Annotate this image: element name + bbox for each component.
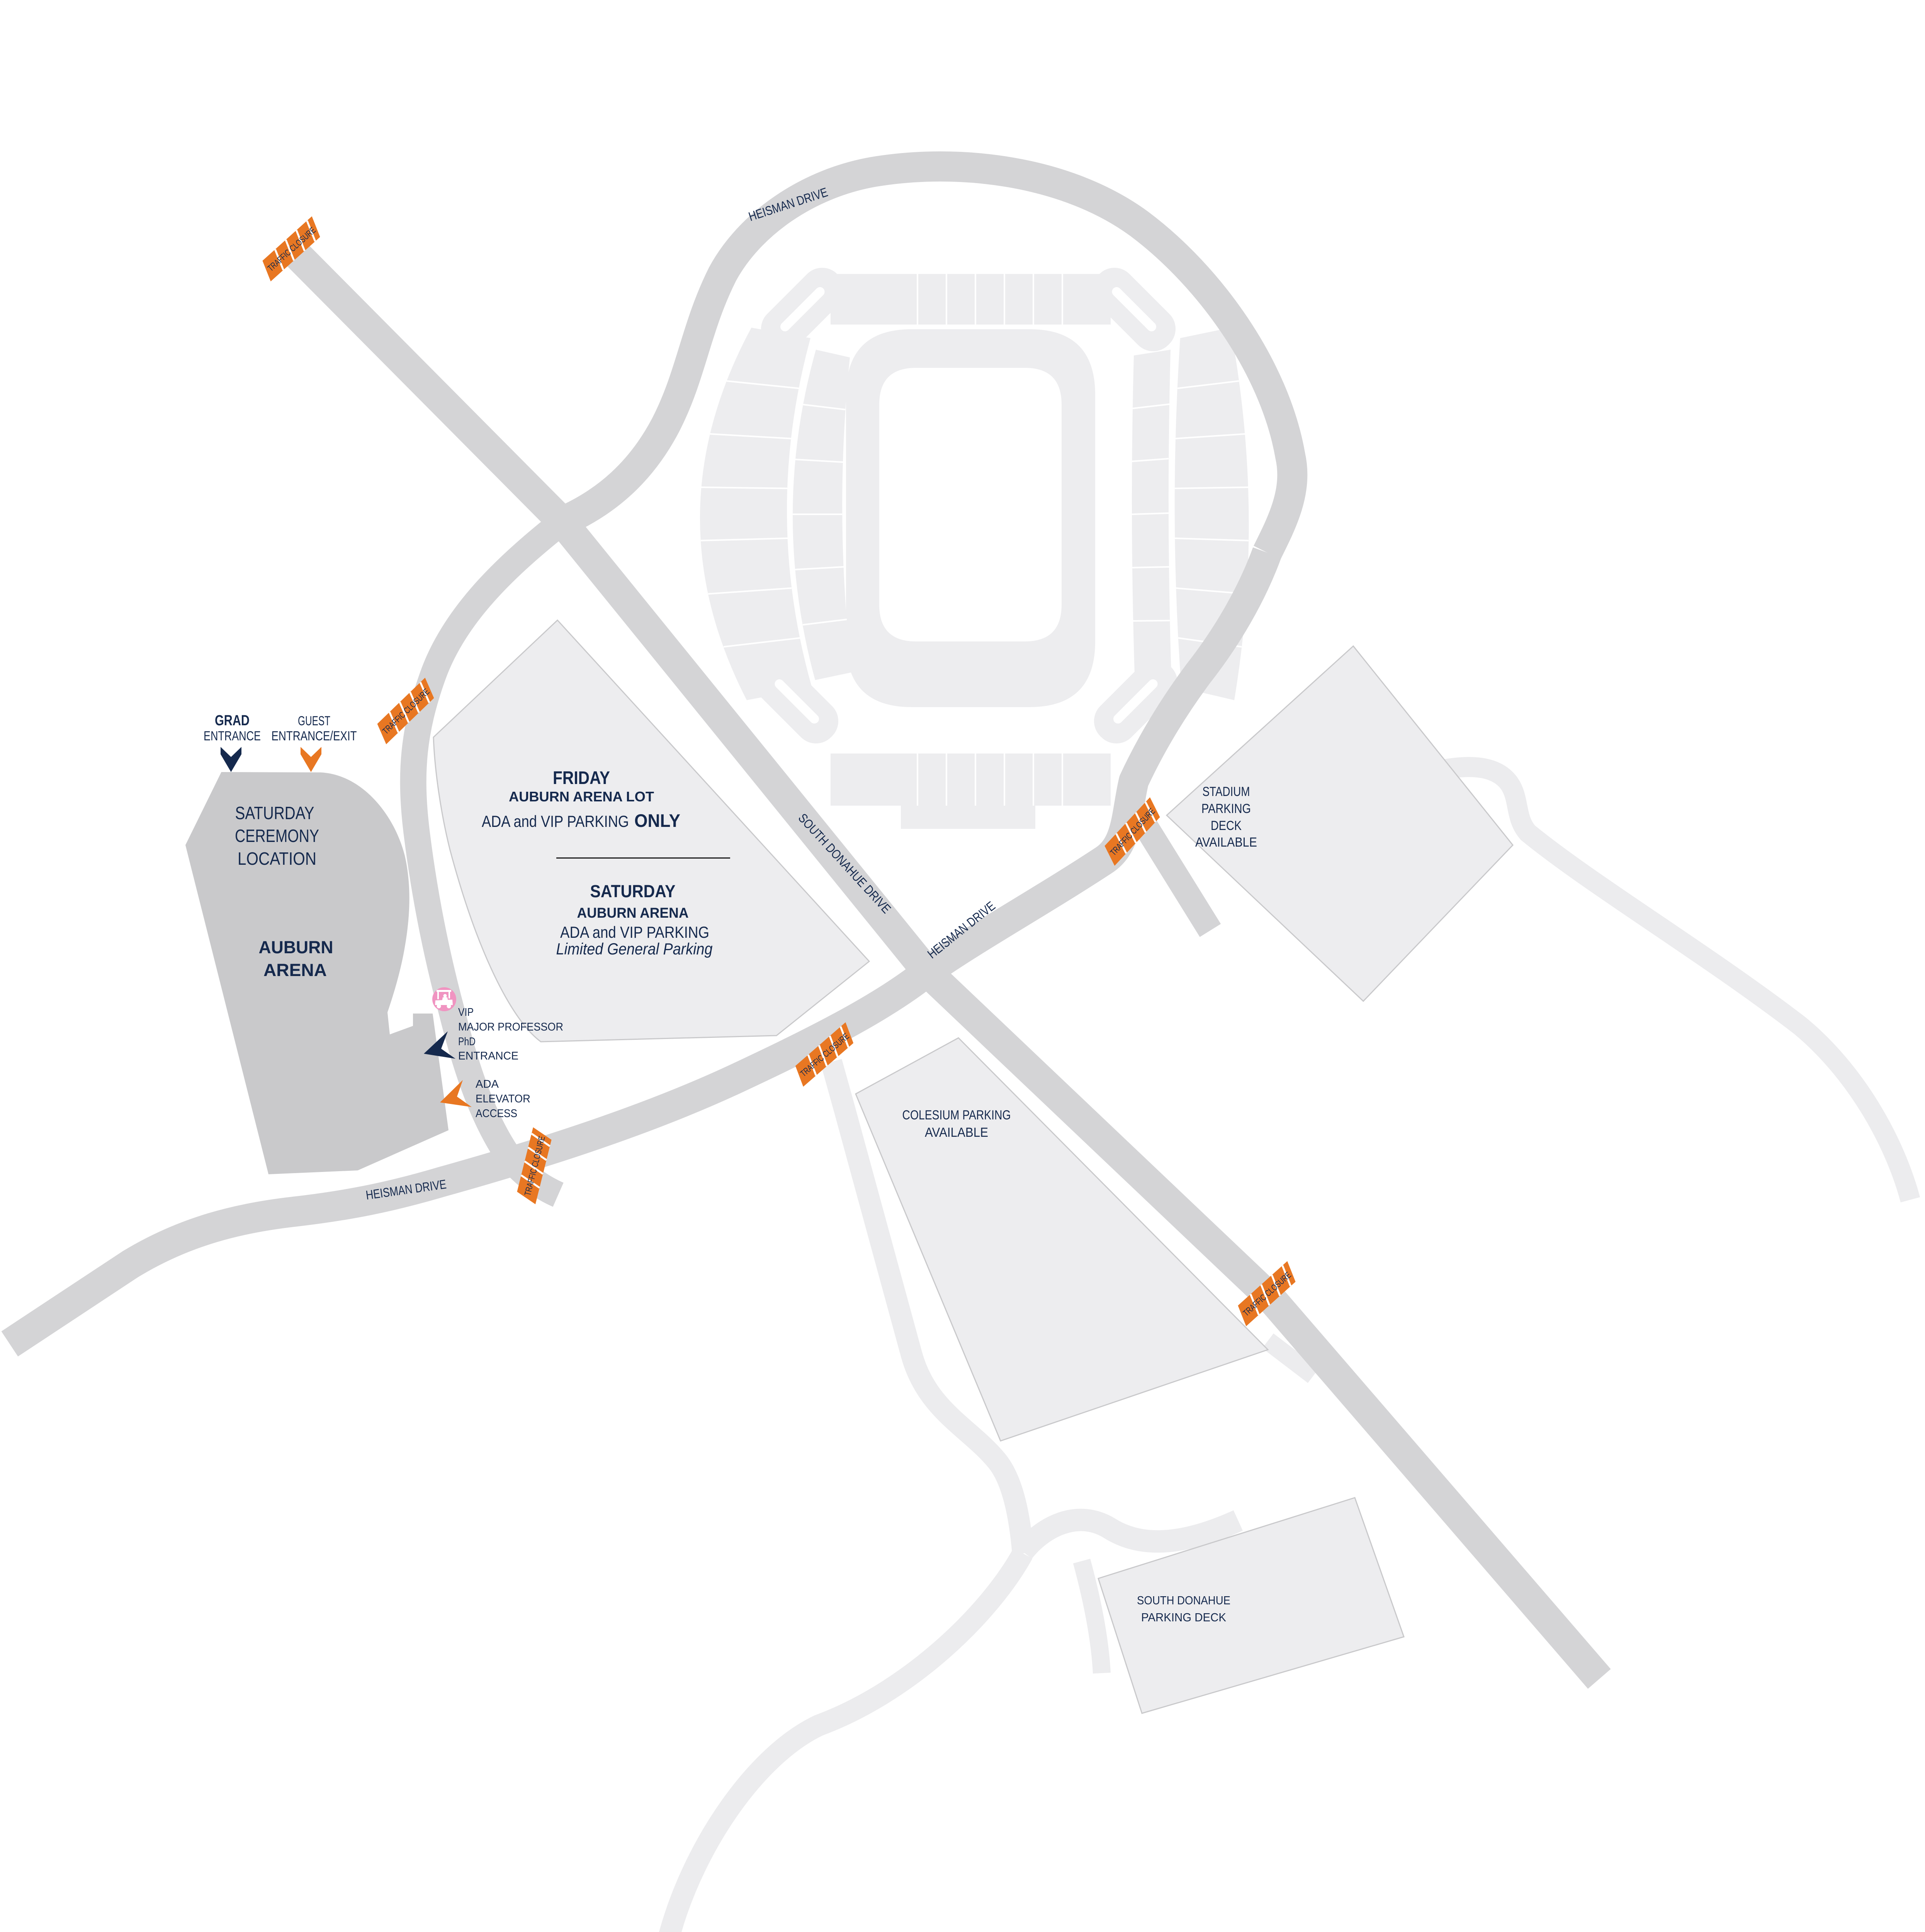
svg-text:ARENA: ARENA [263, 960, 327, 980]
svg-text:GRAD: GRAD [215, 713, 250, 729]
svg-text:PhD: PhD [458, 1036, 476, 1048]
svg-text:DECK: DECK [1211, 818, 1242, 833]
svg-text:FRIDAY: FRIDAY [553, 767, 610, 788]
svg-text:ENTRANCE: ENTRANCE [204, 729, 261, 743]
svg-text:LOCATION: LOCATION [238, 849, 316, 869]
svg-text:AVAILABLE: AVAILABLE [925, 1125, 988, 1140]
svg-text:ADA: ADA [476, 1078, 499, 1090]
svg-text:ONLY: ONLY [634, 810, 680, 831]
svg-text:ADA and VIP PARKING: ADA and VIP PARKING [482, 812, 629, 830]
svg-text:MAJOR PROFESSOR: MAJOR PROFESSOR [458, 1021, 563, 1033]
svg-text:PARKING: PARKING [1201, 801, 1251, 816]
svg-text:GUEST: GUEST [298, 714, 330, 728]
svg-text:AUBURN ARENA: AUBURN ARENA [577, 905, 689, 921]
svg-text:Limited General Parking: Limited General Parking [556, 940, 713, 958]
svg-text:COLESIUM PARKING: COLESIUM PARKING [902, 1108, 1011, 1122]
svg-text:STADIUM: STADIUM [1203, 784, 1250, 799]
svg-text:ENTRANCE: ENTRANCE [458, 1050, 518, 1062]
svg-text:SATURDAY: SATURDAY [590, 881, 676, 901]
svg-text:SATURDAY: SATURDAY [235, 803, 314, 823]
svg-text:SOUTH DONAHUE: SOUTH DONAHUE [1137, 1594, 1230, 1607]
svg-text:ELEVATOR: ELEVATOR [476, 1093, 530, 1105]
svg-text:AUBURN ARENA LOT: AUBURN ARENA LOT [509, 789, 654, 804]
svg-text:CEREMONY: CEREMONY [235, 826, 319, 846]
svg-text:ENTRANCE/EXIT: ENTRANCE/EXIT [272, 729, 357, 743]
svg-text:PARKING DECK: PARKING DECK [1141, 1611, 1226, 1624]
svg-text:AVAILABLE: AVAILABLE [1195, 835, 1257, 850]
svg-text:ADA and VIP PARKING: ADA and VIP PARKING [560, 923, 709, 941]
svg-text:VIP: VIP [458, 1006, 474, 1019]
svg-text:AUBURN: AUBURN [259, 937, 333, 957]
svg-text:ACCESS: ACCESS [476, 1107, 517, 1120]
